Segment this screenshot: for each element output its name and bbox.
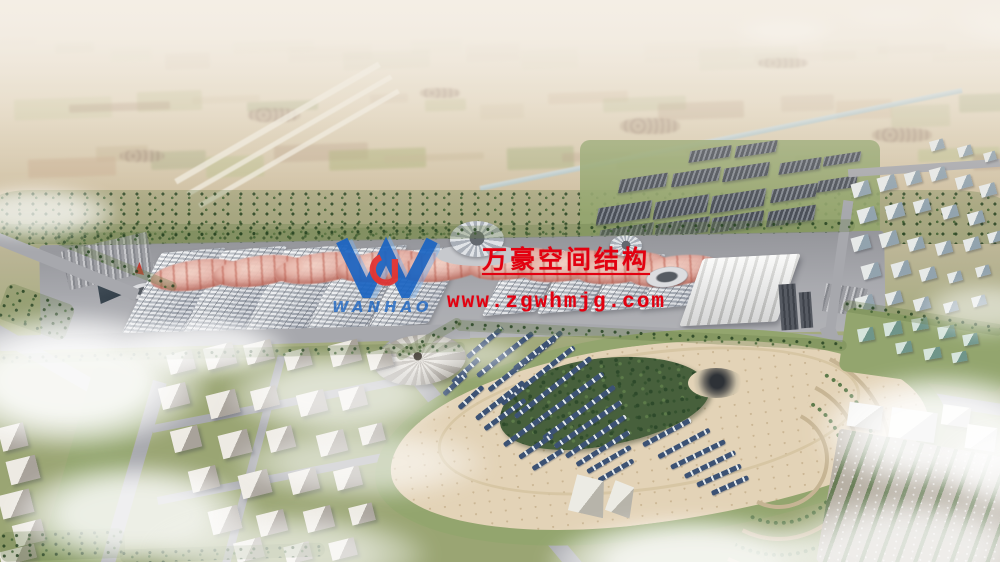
cloud bbox=[420, 338, 530, 373]
field-patch bbox=[658, 101, 745, 121]
field-patch bbox=[55, 42, 94, 53]
city-building bbox=[890, 260, 911, 278]
field-patch bbox=[466, 43, 521, 62]
city-building bbox=[6, 455, 41, 486]
field-patch bbox=[959, 91, 1000, 112]
field-patch bbox=[521, 48, 579, 70]
annex-building bbox=[799, 292, 813, 329]
field-patch bbox=[932, 49, 1000, 63]
teal-building bbox=[857, 327, 875, 343]
village-cluster bbox=[872, 128, 932, 142]
cloud bbox=[845, 2, 935, 24]
city-building bbox=[919, 266, 938, 282]
city-building bbox=[885, 290, 904, 306]
annex-building bbox=[778, 283, 798, 330]
field-patch bbox=[781, 94, 835, 112]
aerial-render: WANHAO 万豪空间结构 www.zgwhmjg.com bbox=[0, 0, 1000, 562]
secondary-dome bbox=[610, 235, 642, 256]
city-building bbox=[975, 264, 991, 277]
village-cluster bbox=[758, 58, 808, 68]
field-patch bbox=[480, 103, 524, 120]
cloud bbox=[225, 352, 455, 437]
village-cluster bbox=[120, 150, 164, 162]
village-cluster bbox=[620, 118, 680, 134]
field-patch bbox=[28, 156, 117, 178]
city-building bbox=[947, 270, 963, 283]
field-patch bbox=[110, 47, 152, 61]
city-building bbox=[170, 425, 202, 453]
field-patch bbox=[0, 37, 36, 45]
cloud bbox=[230, 425, 490, 500]
field-patch bbox=[425, 98, 466, 111]
field-patch bbox=[343, 49, 431, 70]
field-patch bbox=[165, 52, 211, 70]
field-patch bbox=[891, 104, 951, 128]
village-cluster bbox=[420, 88, 460, 98]
cloud bbox=[735, 14, 835, 44]
